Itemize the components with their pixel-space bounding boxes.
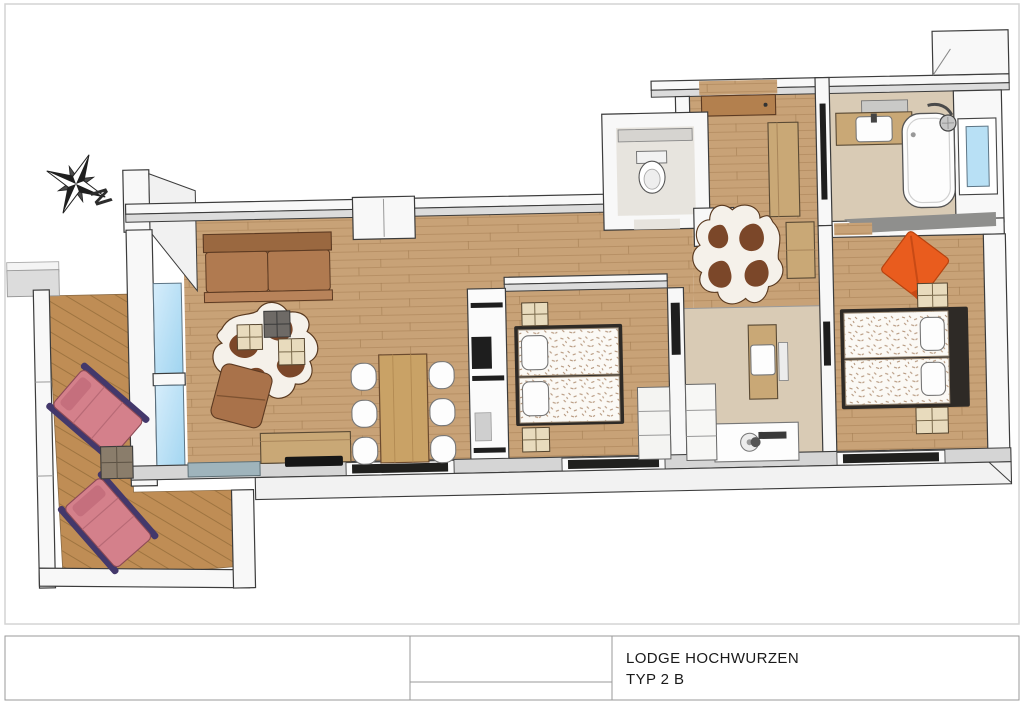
unit-type-label: TYP 2 B [626,671,684,688]
nightstand-stool [522,302,548,326]
pillow [522,381,549,416]
cabinet-front [475,413,492,441]
washbasin [751,345,776,375]
sofa-front-edge [204,290,332,303]
entry-opening [699,80,777,96]
dining-chair [430,398,456,426]
ottoman-beige [278,339,305,366]
wall-shelf [786,222,815,279]
dining-table [379,354,429,463]
pillow [920,317,945,350]
terrace-door-sill [188,461,260,477]
project-title: LODGE HOCHWURZEN [626,650,799,667]
shelf-slot [471,302,503,308]
tv-niche [471,337,492,369]
nightstand-stool [916,407,949,434]
sideboard [260,432,351,468]
dining-chair [429,361,455,389]
top-right-wall-jog [932,30,1009,76]
wc-door-opening [634,219,680,230]
pillow [521,335,548,370]
bedroom1-tv-panel [671,303,681,355]
bedroom2-right-wall [983,234,1010,452]
dining-chair [351,363,377,391]
title-block: LODGE HOCHWURZEN TYP 2 B [5,636,1019,700]
bathroom-window-glass [966,126,989,186]
cube-side-table [101,446,134,479]
tv-device [285,456,343,467]
drawer-chest [637,387,671,460]
sofa [203,232,332,303]
dining-chair [430,435,456,463]
dining-area [351,353,456,464]
shelf-slot [472,375,504,381]
sofa-seat [268,250,331,291]
pillow [921,362,946,395]
wc-cistern-shelf [618,128,692,142]
balcony-window-mullion [153,373,185,386]
shower-fixture [758,431,786,439]
bedroom2-door-track [823,322,831,366]
bedroom2-door-opening [834,223,872,236]
ottoman-beige [237,324,263,350]
balcony-end-wall [231,490,255,588]
nightstand-stool [522,427,549,452]
mirror [779,342,789,380]
dining-chair [352,437,378,465]
dining-chair [352,400,378,428]
ottoman-dark [264,311,291,338]
title-block-border [5,636,1019,700]
drawer-chest [685,384,717,461]
balcony-window-glass-upper [153,283,183,376]
faucet [871,113,877,122]
sofa-seat [206,251,269,292]
hall-bench [768,122,800,217]
corner-pillar [123,170,150,233]
nightstand-stool [917,283,947,308]
floor-plan-canvas: N LODGE HOCHWURZEN TYP 2 B [0,0,1024,705]
shelf-slot [474,447,506,453]
toilet-bowl [644,169,660,189]
sofa-back [203,232,331,253]
wardrobe-column [467,288,509,476]
